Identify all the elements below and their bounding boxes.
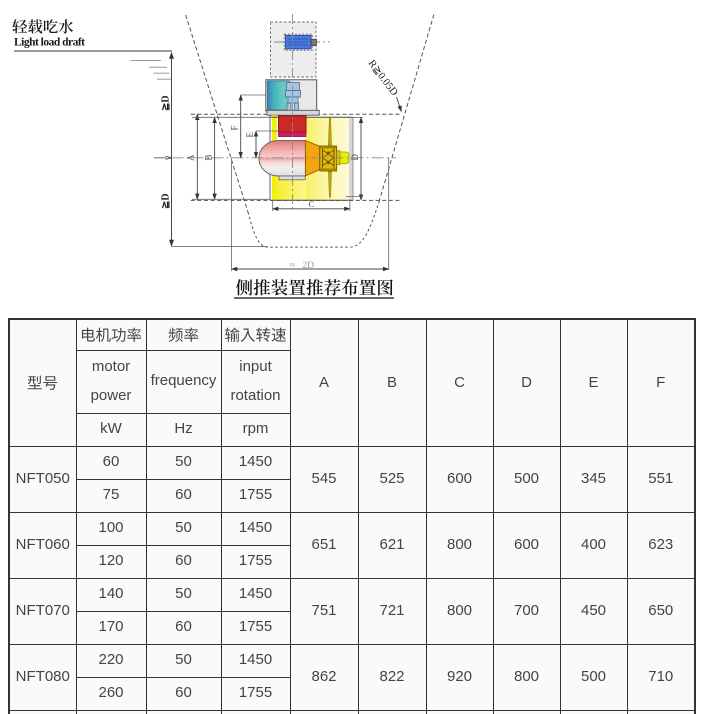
svg-text:C: C (309, 199, 315, 209)
svg-text:B: B (204, 154, 214, 160)
svg-text:≧D: ≧D (161, 95, 172, 111)
svg-text:≧D: ≧D (161, 193, 172, 209)
svg-text:A: A (186, 154, 196, 161)
svg-text:R≧0.05D: R≧0.05D (366, 58, 400, 98)
svg-text:F: F (230, 125, 240, 130)
svg-text:≈ 2D: ≈ 2D (290, 261, 314, 271)
svg-text:D: D (350, 154, 360, 161)
svg-text:E: E (245, 132, 255, 138)
svg-text:Light load draft: Light load draft (14, 37, 85, 49)
